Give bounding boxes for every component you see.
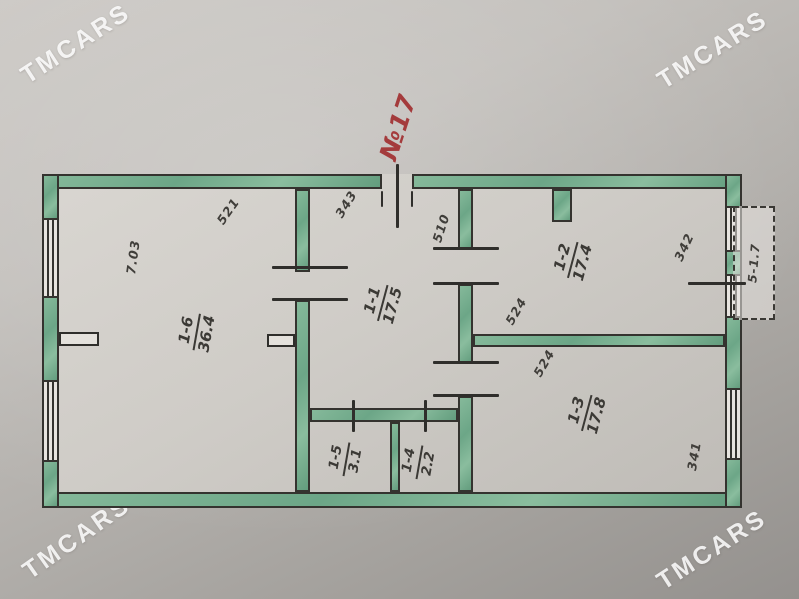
door-tick-1-3-top (433, 361, 499, 364)
wall-top-right-segment (412, 174, 742, 189)
entrance-jamb-left (381, 191, 383, 207)
room-label-1-5: 1-5 3.1 (326, 439, 366, 479)
door-tick-1-2-bottom (433, 282, 499, 285)
door-tick-1-5 (352, 400, 355, 432)
door-tick-1-2-top (433, 247, 499, 250)
wall-right-corner-top (725, 174, 742, 208)
plan-number: №17 (374, 90, 423, 164)
photo-of-floor-plan: TMCARS TMCARS TMCARS TMCARS №17 (0, 0, 799, 599)
wall-room-1-1-right-lower (458, 396, 473, 492)
window-left-lower (42, 382, 59, 460)
wall-left-corner-bottom (42, 460, 59, 508)
wall-top-left-segment (42, 174, 382, 189)
door-tick-1-6-bottom (272, 298, 348, 301)
watermark-top-left: TMCARS (16, 0, 137, 90)
stub-room-1-6-wall (267, 334, 295, 347)
door-tick-1-3-bottom (433, 394, 499, 397)
wall-room-1-6-upper (295, 189, 310, 272)
window-right-room-1-3 (725, 390, 742, 458)
watermark-top-right: TMCARS (652, 5, 773, 96)
room-label-1-4: 1-4 2.2 (399, 442, 439, 482)
wall-left-pier (42, 296, 59, 382)
room-label-1-6: 1-6 36.4 (175, 310, 219, 353)
stub-left-wall (59, 332, 99, 346)
floor-plan (42, 174, 742, 508)
wall-bottom (42, 492, 742, 508)
door-tick-1-4 (424, 400, 427, 432)
entrance-door-tick (396, 164, 399, 228)
wall-room-1-1-right-mid (458, 284, 473, 364)
wall-left-corner-top (42, 174, 59, 220)
balcony-door-tick (688, 282, 746, 285)
wall-between-1-5-and-1-4 (390, 422, 400, 492)
wall-right-pier-2 (725, 316, 742, 390)
watermark-bottom-right: TMCARS (652, 504, 773, 596)
wall-room-1-1-right-upper (458, 189, 473, 250)
wall-between-1-2-and-1-3 (473, 334, 725, 347)
wall-right-corner-bottom (725, 458, 742, 508)
wall-room-1-6-lower (295, 300, 310, 492)
entrance-jamb-right (411, 191, 413, 207)
wall-stub-room-1-2 (552, 189, 572, 222)
wall-between-1-1-and-bath (310, 408, 458, 422)
window-left-upper (42, 220, 59, 296)
door-tick-1-6-top (272, 266, 348, 269)
